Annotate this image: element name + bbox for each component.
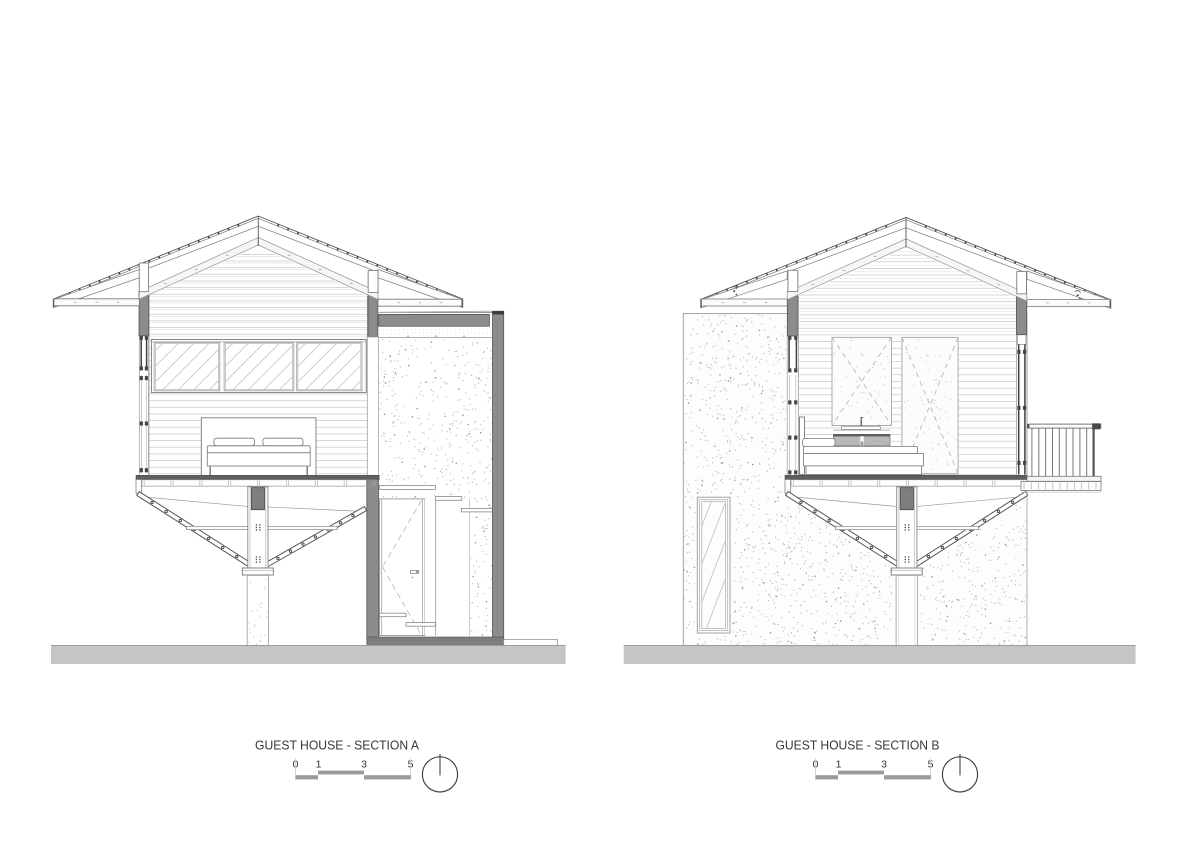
svg-text:3: 3 xyxy=(881,759,887,771)
svg-text:GUEST HOUSE - SECTION B: GUEST HOUSE - SECTION B xyxy=(776,739,940,753)
svg-text:3: 3 xyxy=(361,759,367,771)
svg-text:1: 1 xyxy=(316,759,322,771)
svg-text:GUEST HOUSE - SECTION A: GUEST HOUSE - SECTION A xyxy=(255,739,420,753)
svg-text:1: 1 xyxy=(836,759,842,771)
